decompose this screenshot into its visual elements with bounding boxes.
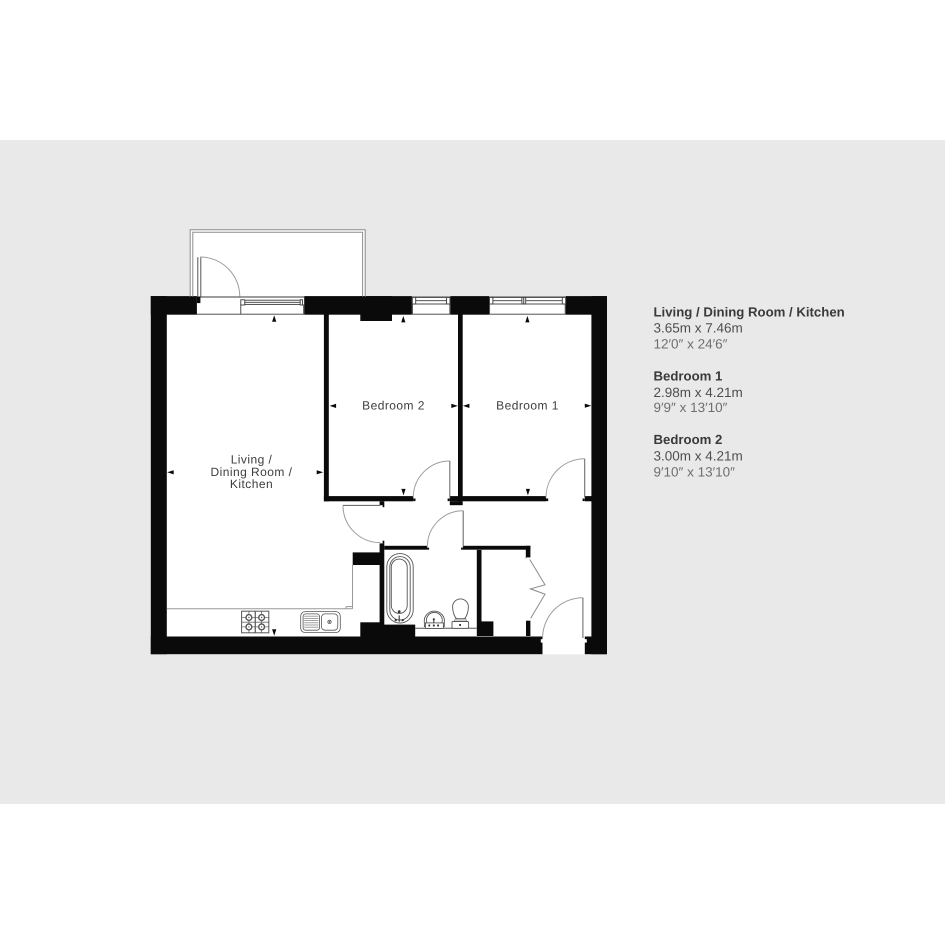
svg-text:2.98m x 4.21m: 2.98m x 4.21m bbox=[654, 385, 743, 400]
svg-text:3.65m x 7.46m: 3.65m x 7.46m bbox=[654, 320, 743, 335]
svg-text:Bedroom 2: Bedroom 2 bbox=[654, 432, 723, 447]
svg-text:Bedroom 2: Bedroom 2 bbox=[362, 399, 425, 413]
svg-text:12′0″ x 24′6″: 12′0″ x 24′6″ bbox=[654, 336, 728, 351]
svg-text:Bedroom 1: Bedroom 1 bbox=[496, 399, 559, 413]
svg-text:Kitchen: Kitchen bbox=[230, 477, 273, 491]
svg-text:9′9″ x 13′10″: 9′9″ x 13′10″ bbox=[654, 400, 728, 415]
svg-text:3.00m x 4.21m: 3.00m x 4.21m bbox=[654, 448, 743, 463]
svg-text:Bedroom 1: Bedroom 1 bbox=[654, 369, 723, 384]
svg-text:Living / Dining Room / Kitchen: Living / Dining Room / Kitchen bbox=[654, 305, 845, 320]
svg-text:9′10″ x 13′10″: 9′10″ x 13′10″ bbox=[654, 465, 736, 480]
